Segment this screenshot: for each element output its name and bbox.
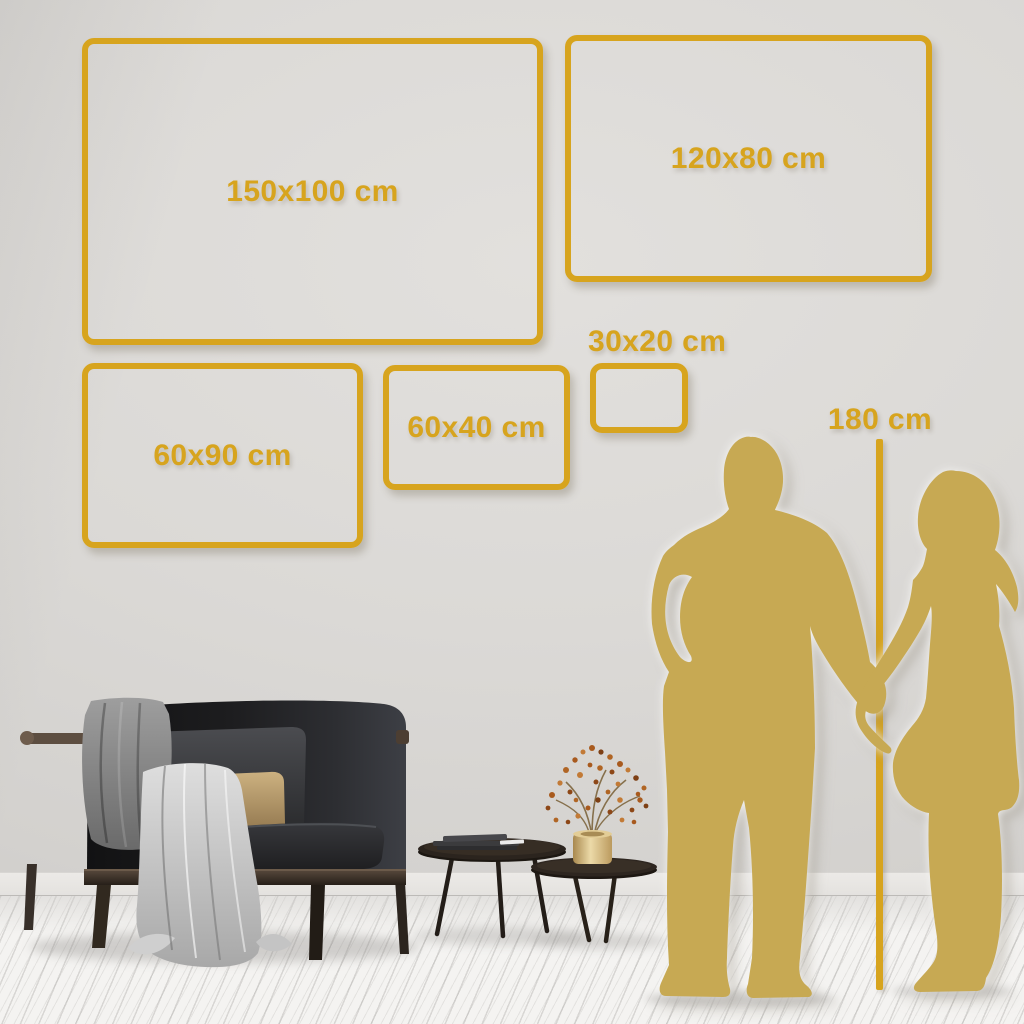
man-silhouette <box>651 437 886 998</box>
woman-silhouette <box>856 470 1020 992</box>
canvas-size-guide-scene: 150x100 cm 120x80 cm 60x90 cm 60x40 cm 3… <box>0 0 1024 1024</box>
couple-silhouette <box>0 0 1024 1024</box>
